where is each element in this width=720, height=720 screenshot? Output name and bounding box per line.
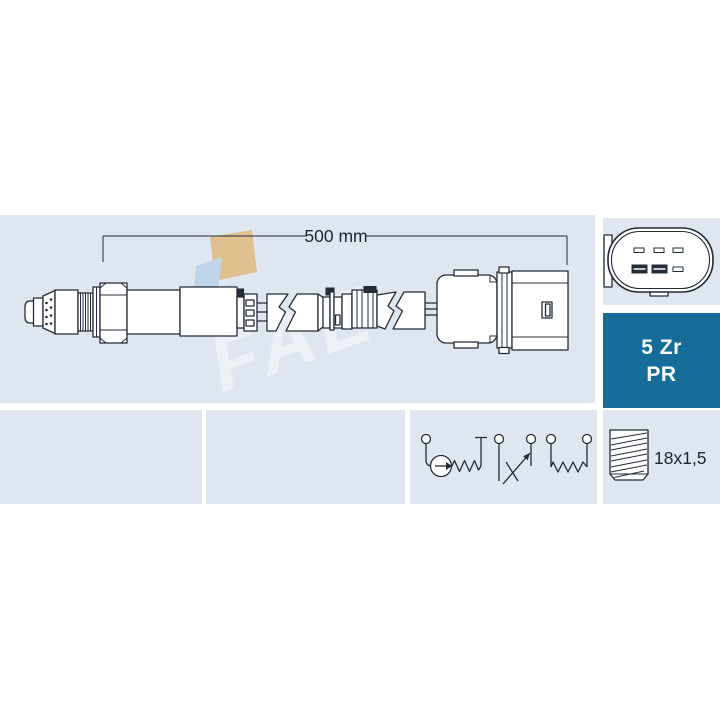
panel-empty-2 (206, 410, 405, 504)
circuit-diagram-icon (410, 410, 597, 504)
dimension-label: 500 mm (304, 226, 367, 246)
panel-circuit (410, 410, 597, 504)
spec-badge: 5 Zr PR (603, 313, 720, 408)
thread-size-icon: 18x1,5 (603, 410, 720, 504)
badge-text-line1: 5 Zr (641, 334, 682, 361)
dimension-line: 500 mm (103, 226, 567, 265)
connector-pinout-icon (603, 218, 720, 305)
panel-thread-size: 18x1,5 (603, 410, 720, 504)
panel-connector-pinout (603, 218, 720, 305)
badge-text-line2: PR (646, 361, 676, 388)
panel-main-drawing: FAE 500 mm (0, 215, 595, 403)
panel-empty-1 (0, 410, 202, 504)
lambda-sensor-drawing: FAE 500 mm (0, 215, 595, 403)
thread-size-label: 18x1,5 (654, 448, 707, 468)
catalog-image: FAE 500 mm (0, 0, 720, 720)
